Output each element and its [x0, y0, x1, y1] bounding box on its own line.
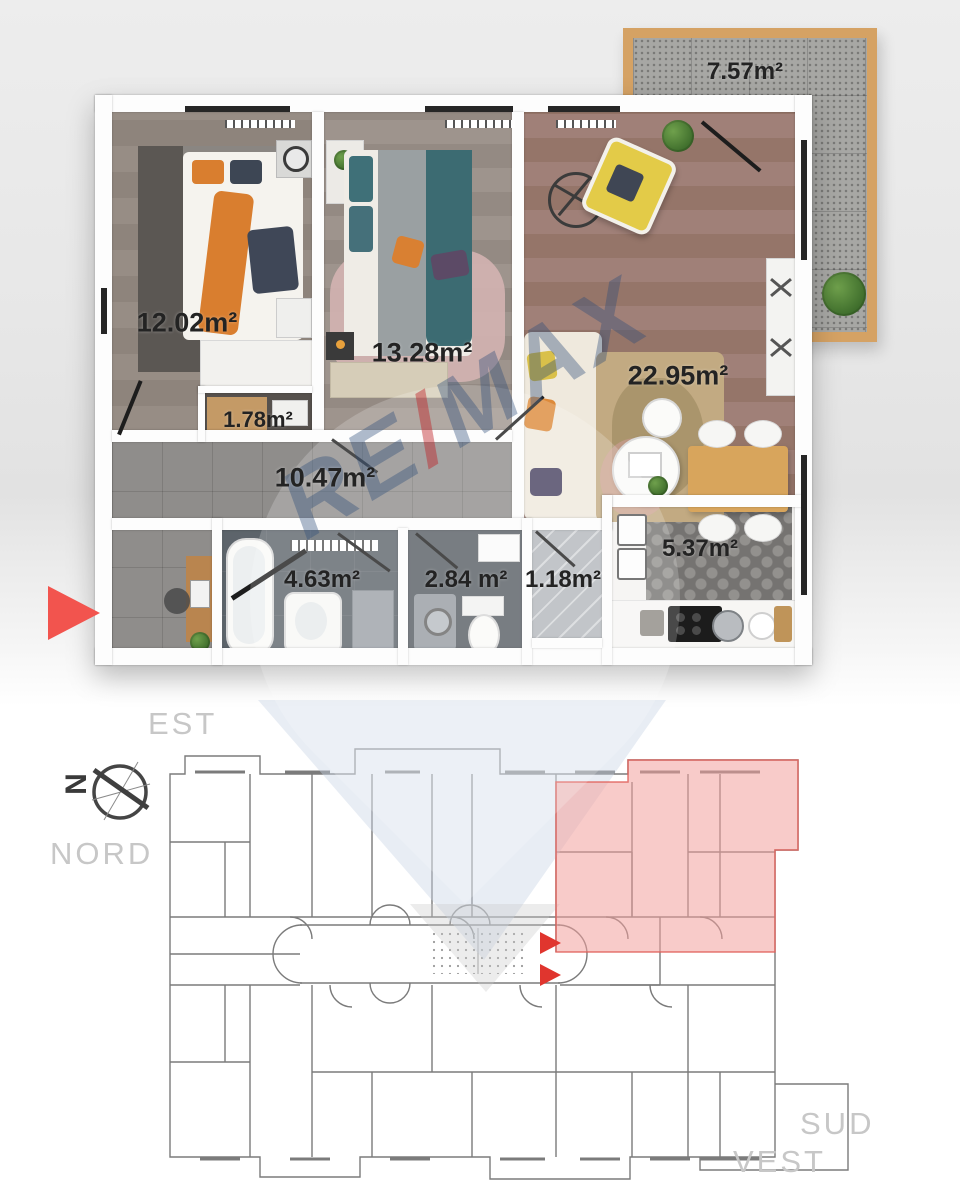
pillow — [349, 156, 373, 202]
window — [801, 455, 807, 595]
mirror-icon — [283, 146, 309, 172]
highlighted-unit — [556, 760, 798, 952]
terrace-plant-icon — [822, 272, 866, 316]
burner-icon — [692, 626, 701, 635]
window — [425, 106, 513, 112]
candle-icon — [336, 340, 345, 349]
area-label-terrace: 7.57m² — [707, 58, 783, 86]
area-label-hallway: 10.47m² — [275, 463, 376, 494]
window — [101, 288, 107, 334]
wall — [212, 518, 222, 665]
pillow — [192, 160, 224, 184]
wall — [198, 386, 205, 442]
direction-label-nord: NORD — [50, 836, 153, 871]
window — [801, 140, 807, 260]
chair — [744, 514, 782, 542]
wall — [198, 386, 312, 393]
area-label-bedroom1: 12.02m² — [137, 308, 238, 339]
side-table — [642, 398, 682, 438]
area-label-living: 22.95m² — [628, 361, 729, 392]
area-label-bathroom: 4.63m² — [284, 566, 360, 594]
cutting-board — [774, 606, 792, 642]
compass-north-letter: N — [60, 773, 93, 795]
burner-icon — [692, 613, 701, 622]
entrance-arrow-icon — [48, 586, 100, 640]
compass: N — [60, 762, 150, 820]
dresser — [200, 340, 314, 390]
chair — [744, 420, 782, 448]
window — [185, 106, 290, 112]
area-label-toilet: 2.84 m² — [425, 566, 508, 594]
sink — [748, 612, 776, 640]
radiator — [225, 120, 295, 128]
direction-label-est: EST — [148, 706, 217, 741]
area-label-kitchen: 5.37m² — [662, 535, 738, 563]
radiator — [445, 120, 515, 128]
blanket — [426, 150, 472, 346]
chair — [698, 420, 736, 448]
direction-label-vest: VEST — [733, 1144, 826, 1179]
pan-icon — [712, 610, 744, 642]
desk-chair — [164, 588, 190, 614]
pillow — [230, 160, 262, 184]
nightstand — [276, 298, 312, 338]
direction-label-sud: SUD — [800, 1106, 874, 1141]
radiator — [556, 120, 616, 128]
area-label-storage: 1.18m² — [525, 566, 601, 594]
area-label-bedroom2: 13.28m² — [372, 338, 473, 369]
laptop-icon — [190, 580, 210, 608]
pillow — [349, 206, 373, 252]
plant-icon — [662, 120, 694, 152]
wall — [95, 95, 112, 665]
window — [548, 106, 620, 112]
blanket — [247, 226, 299, 294]
wall — [312, 112, 324, 432]
listing-floorplan-image: RE/MAX 12.02m² 1.78m² 13.28m² 22.95m² 10… — [0, 0, 960, 1192]
area-label-closet: 1.78m² — [223, 407, 293, 433]
